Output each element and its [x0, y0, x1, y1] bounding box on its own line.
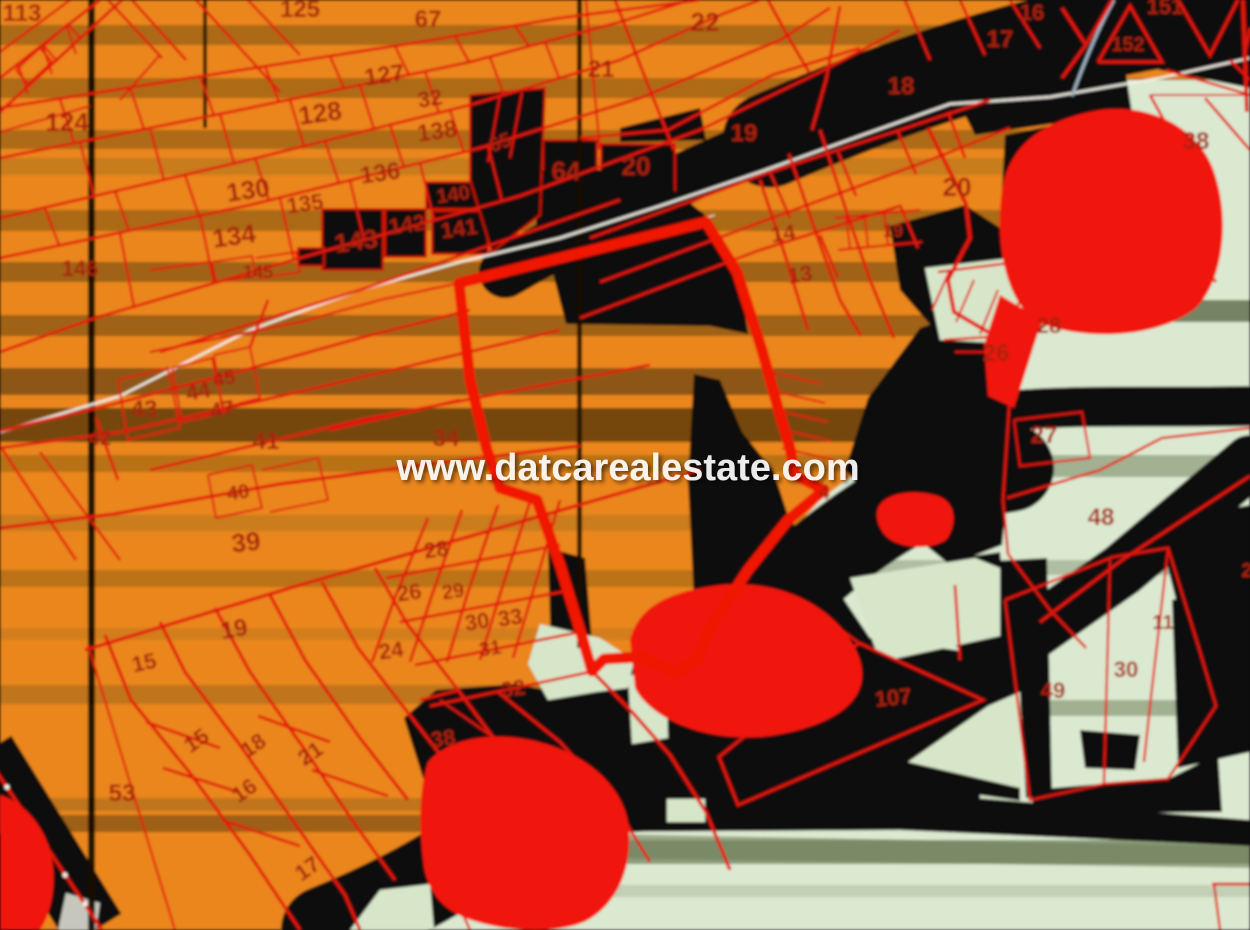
svg-text:13: 13: [786, 260, 814, 288]
svg-text:26: 26: [983, 340, 1010, 367]
svg-text:42: 42: [89, 428, 111, 450]
svg-text:28: 28: [422, 535, 450, 563]
svg-text:2: 2: [1241, 560, 1250, 582]
svg-text:146: 146: [62, 256, 99, 281]
svg-text:145: 145: [243, 262, 273, 282]
svg-text:17: 17: [987, 26, 1014, 53]
svg-text:124: 124: [45, 107, 89, 137]
svg-text:130: 130: [224, 172, 271, 208]
svg-text:31: 31: [478, 637, 503, 662]
svg-text:32: 32: [499, 674, 527, 702]
svg-text:43: 43: [131, 396, 158, 423]
svg-text:41: 41: [253, 428, 280, 455]
svg-text:29: 29: [441, 580, 466, 605]
svg-text:30: 30: [1114, 657, 1138, 682]
svg-text:40: 40: [226, 481, 251, 506]
svg-text:134: 134: [210, 218, 258, 254]
svg-text:21: 21: [588, 56, 615, 83]
svg-text:19: 19: [731, 120, 758, 147]
svg-text:140: 140: [435, 182, 471, 208]
svg-text:135: 135: [285, 189, 325, 219]
svg-text:14: 14: [769, 219, 797, 247]
svg-text:18: 18: [888, 73, 915, 100]
svg-text:47: 47: [208, 395, 236, 424]
svg-text:20: 20: [622, 151, 651, 181]
svg-text:45: 45: [211, 366, 237, 392]
svg-text:24: 24: [377, 636, 405, 664]
svg-text:152: 152: [1111, 34, 1144, 56]
svg-text:33: 33: [496, 603, 524, 631]
svg-text:38: 38: [1183, 128, 1210, 155]
svg-text:107: 107: [873, 683, 912, 712]
svg-text:141: 141: [439, 214, 479, 244]
svg-text:67: 67: [415, 6, 442, 33]
svg-text:125: 125: [280, 0, 320, 23]
svg-text:19: 19: [219, 614, 250, 645]
svg-text:26: 26: [395, 578, 423, 606]
svg-text:32: 32: [416, 84, 444, 112]
svg-text:136: 136: [359, 157, 402, 189]
svg-text:48: 48: [1088, 504, 1115, 531]
svg-text:30: 30: [463, 607, 491, 635]
svg-text:11: 11: [1152, 612, 1173, 634]
svg-text:49: 49: [1041, 678, 1065, 703]
svg-text:53: 53: [109, 780, 136, 807]
svg-text:27: 27: [1031, 422, 1058, 449]
svg-text:39: 39: [230, 526, 262, 559]
svg-text:www.datcarealestate.com: www.datcarealestate.com: [395, 447, 859, 489]
svg-text:142: 142: [387, 210, 427, 240]
svg-text:113: 113: [3, 0, 42, 27]
svg-text:22: 22: [691, 7, 720, 37]
svg-text:19: 19: [883, 221, 903, 241]
svg-text:64: 64: [552, 156, 581, 186]
svg-text:127: 127: [363, 59, 406, 91]
svg-text:20: 20: [943, 172, 972, 202]
svg-text:38: 38: [429, 724, 457, 752]
svg-text:28: 28: [1037, 313, 1061, 338]
svg-text:143: 143: [332, 223, 379, 259]
svg-text:15: 15: [130, 648, 159, 678]
svg-text:16: 16: [1020, 0, 1044, 25]
svg-text:151: 151: [1147, 0, 1184, 19]
svg-text:138: 138: [416, 115, 459, 147]
svg-text:128: 128: [296, 95, 343, 131]
